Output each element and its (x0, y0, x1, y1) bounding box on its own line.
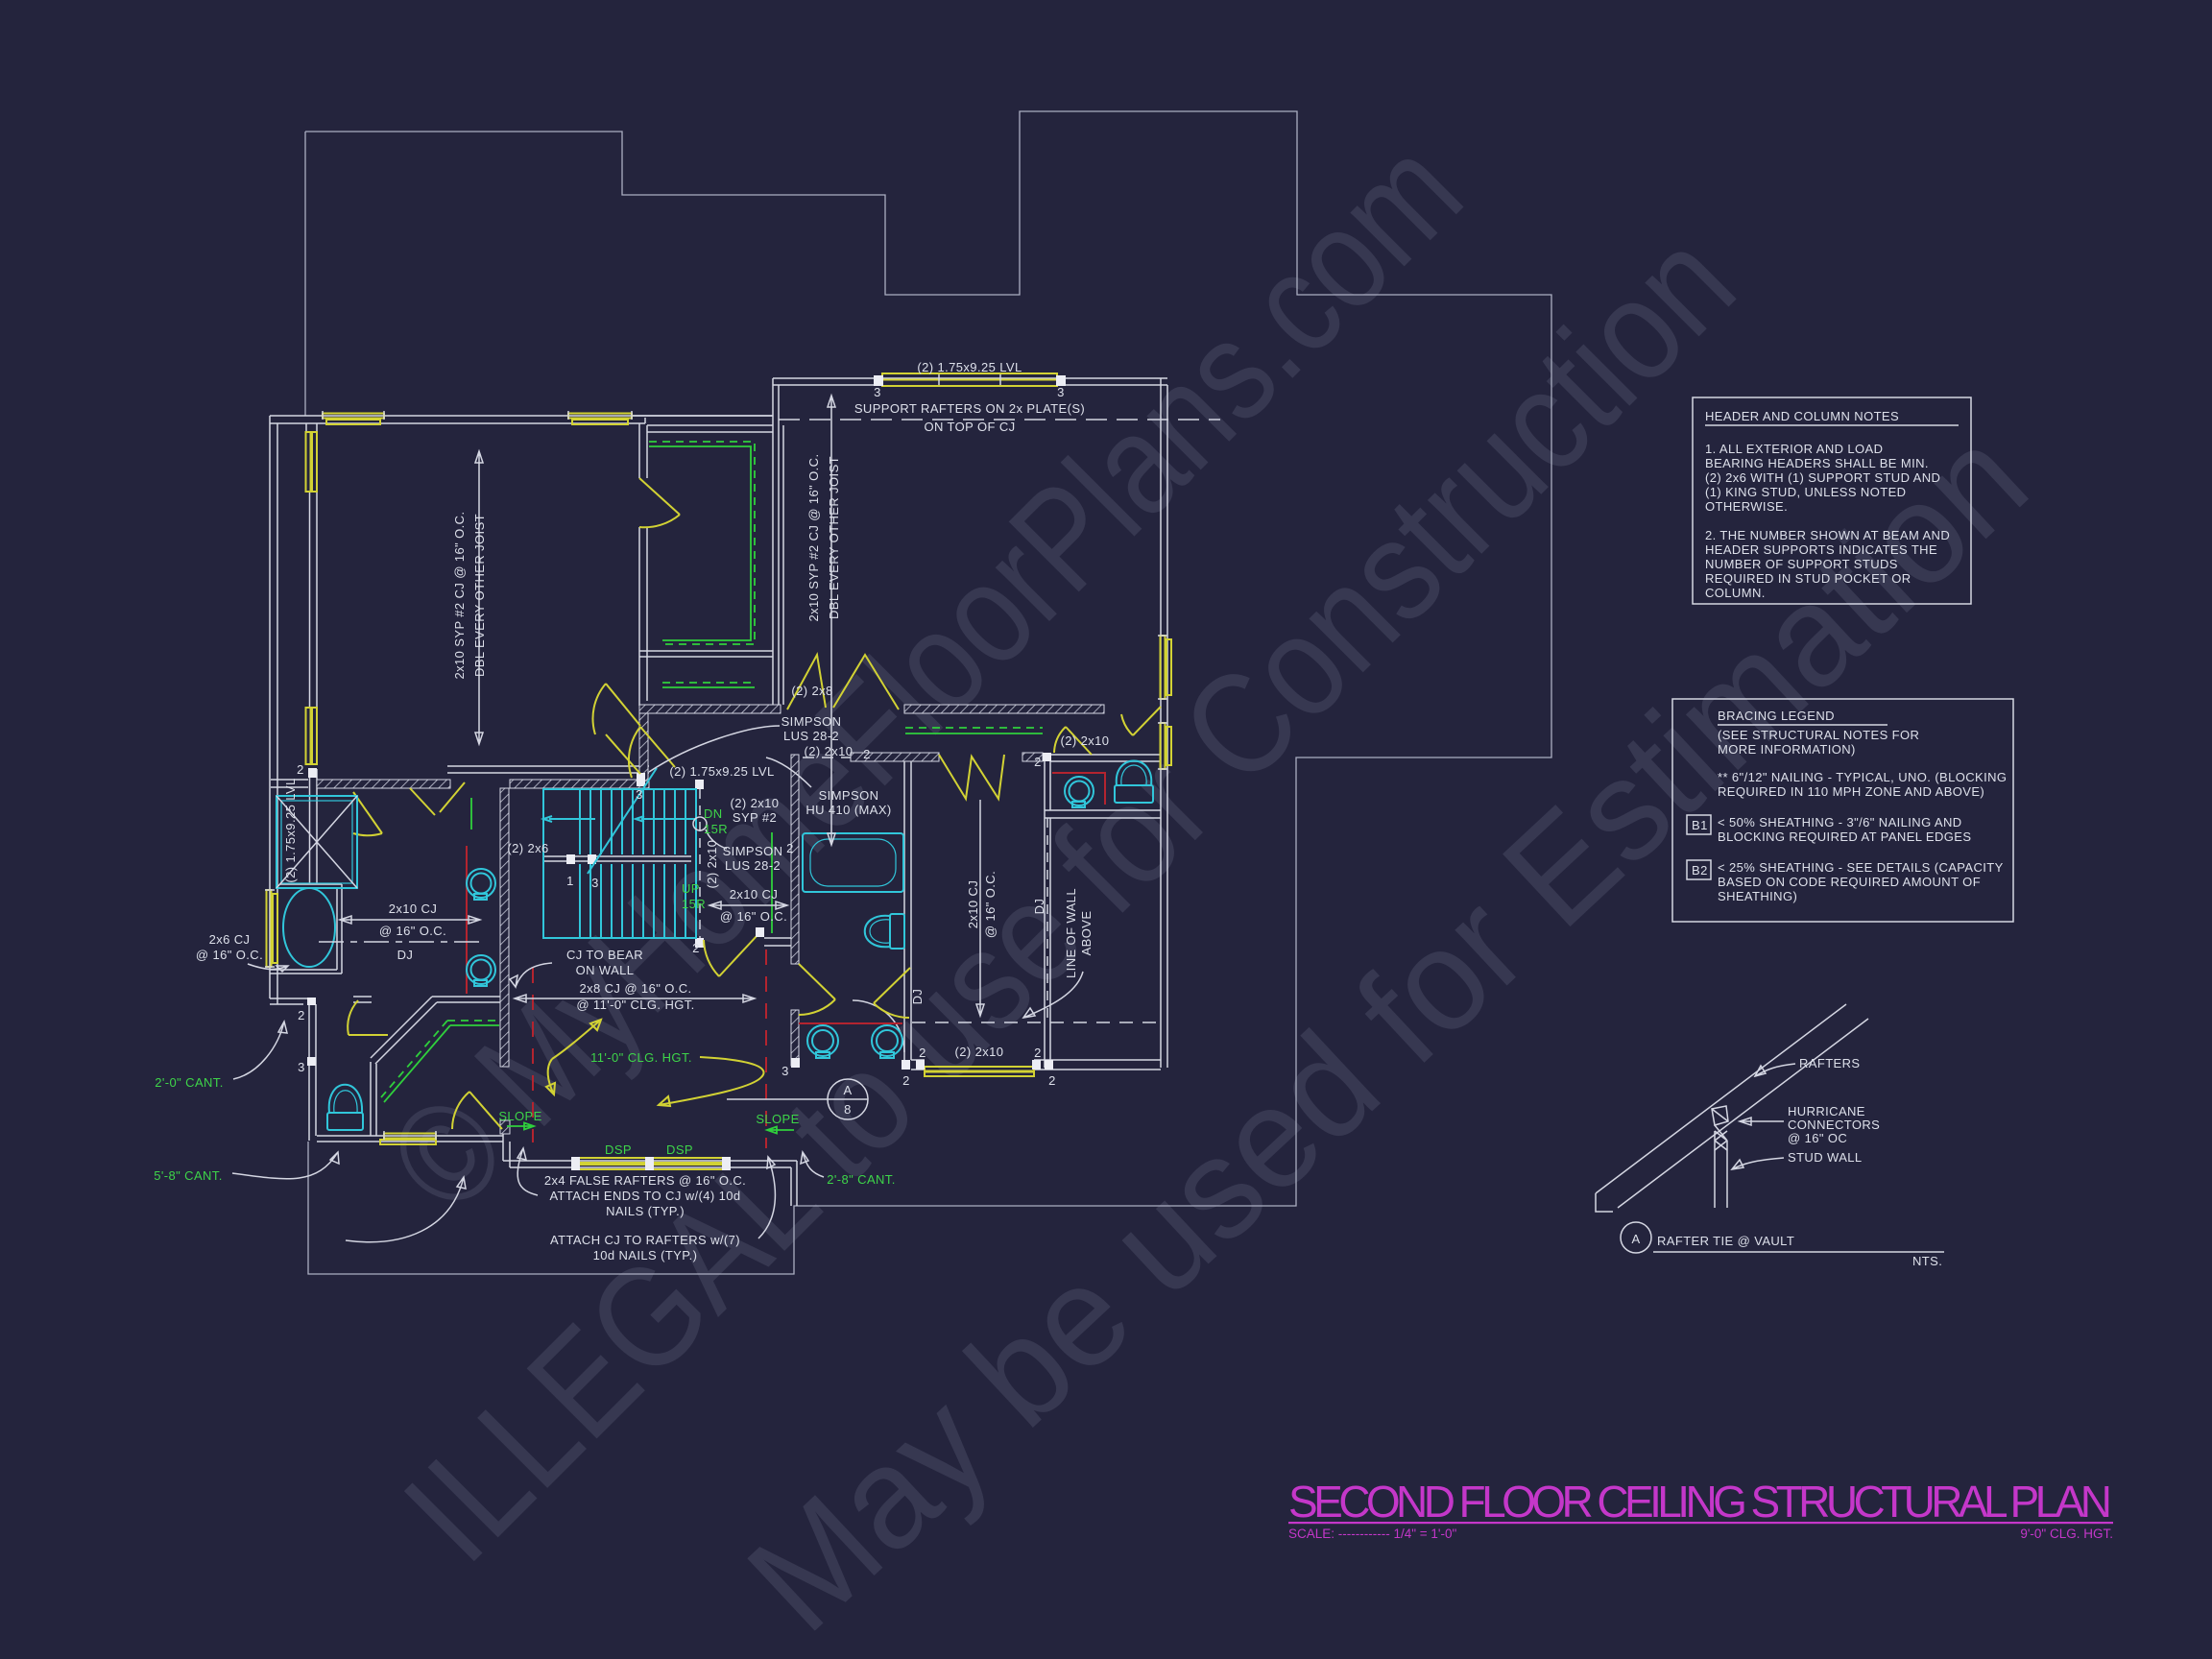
svg-text:(2) 2x6: (2) 2x6 (507, 841, 548, 855)
svg-text:MORE INFORMATION): MORE INFORMATION) (1718, 742, 1856, 757)
svg-text:11'-0" CLG. HGT.: 11'-0" CLG. HGT. (590, 1050, 692, 1065)
svg-text:STUD WALL: STUD WALL (1788, 1150, 1863, 1165)
svg-text:(2) 2x10: (2) 2x10 (731, 796, 780, 810)
svg-text:NTS.: NTS. (1912, 1254, 1942, 1268)
svg-text:DJ: DJ (397, 948, 414, 962)
svg-text:2x4 FALSE RAFTERS @ 16" O.C.: 2x4 FALSE RAFTERS @ 16" O.C. (544, 1173, 746, 1188)
svg-text:2: 2 (298, 1008, 305, 1022)
svg-text:2x6 CJ: 2x6 CJ (209, 932, 251, 947)
svg-text:** 6"/12" NAILING - TYPICAL, U: ** 6"/12" NAILING - TYPICAL, UNO. (BLOCK… (1718, 770, 2007, 784)
svg-text:ATTACH ENDS TO CJ w/(4) 10d: ATTACH ENDS TO CJ w/(4) 10d (549, 1189, 740, 1203)
svg-text:3: 3 (636, 787, 643, 802)
svg-text:ATTACH CJ TO RAFTERS w/(7): ATTACH CJ TO RAFTERS w/(7) (550, 1233, 740, 1247)
svg-text:SIMPSON: SIMPSON (819, 788, 879, 803)
svg-text:NAILS (TYP.): NAILS (TYP.) (606, 1204, 685, 1218)
svg-text:UP: UP (682, 881, 700, 896)
svg-text:A: A (1631, 1232, 1640, 1246)
svg-text:OTHERWISE.: OTHERWISE. (1705, 499, 1788, 514)
svg-text:DSP: DSP (605, 1142, 632, 1157)
svg-text:BASED ON CODE REQUIRED AMOUNT: BASED ON CODE REQUIRED AMOUNT OF (1718, 875, 1981, 889)
svg-text:SIMPSON: SIMPSON (781, 714, 842, 729)
svg-text:SHEATHING): SHEATHING) (1718, 889, 1797, 903)
svg-text:@ 16" OC: @ 16" OC (1788, 1131, 1847, 1145)
svg-text:HURRICANE: HURRICANE (1788, 1104, 1865, 1118)
svg-text:SLOPE: SLOPE (498, 1109, 541, 1123)
svg-text:@ 16" O.C.: @ 16" O.C. (983, 871, 998, 938)
svg-text:SYP #2: SYP #2 (733, 810, 777, 825)
svg-text:2: 2 (863, 747, 871, 761)
svg-text:SIMPSON: SIMPSON (723, 844, 783, 858)
svg-text:REQUIRED IN STUD POCKET OR: REQUIRED IN STUD POCKET OR (1705, 571, 1911, 586)
svg-text:DBL EVERY OTHER JOIST: DBL EVERY OTHER JOIST (472, 514, 487, 677)
svg-text:< 25% SHEATHING - SEE DETAILS: < 25% SHEATHING - SEE DETAILS (CAPACITY (1718, 860, 2004, 875)
svg-text:SLOPE: SLOPE (756, 1112, 799, 1126)
svg-text:BLOCKING REQUIRED AT PANEL EDG: BLOCKING REQUIRED AT PANEL EDGES (1718, 829, 1971, 844)
svg-text:(2) 2x6 WITH (1) SUPPORT STUD: (2) 2x6 WITH (1) SUPPORT STUD AND (1705, 470, 1940, 485)
svg-text:(2) 2x10: (2) 2x10 (705, 840, 719, 889)
svg-text:HU 410 (MAX): HU 410 (MAX) (805, 803, 891, 817)
svg-text:3: 3 (1057, 385, 1065, 399)
svg-text:RAFTER TIE @ VAULT: RAFTER TIE @ VAULT (1657, 1234, 1794, 1248)
svg-text:(2) 2x8: (2) 2x8 (791, 684, 832, 698)
svg-text:ON WALL: ON WALL (576, 963, 635, 977)
svg-text:2: 2 (902, 1073, 910, 1088)
svg-text:ABOVE: ABOVE (1079, 911, 1094, 956)
svg-text:2x8 CJ @ 16" O.C.: 2x8 CJ @ 16" O.C. (579, 981, 691, 996)
svg-text:3: 3 (298, 1060, 305, 1074)
svg-text:NUMBER OF SUPPORT STUDS: NUMBER OF SUPPORT STUDS (1705, 557, 1898, 571)
svg-text:2'-0" CANT.: 2'-0" CANT. (155, 1075, 223, 1090)
svg-text:3: 3 (874, 385, 881, 399)
svg-text:A: A (843, 1083, 852, 1097)
svg-text:(2) 1.75x9.25 LVL: (2) 1.75x9.25 LVL (917, 360, 1022, 374)
svg-text:2: 2 (1034, 1046, 1042, 1060)
svg-text:HEADER AND COLUMN NOTES: HEADER AND COLUMN NOTES (1705, 409, 1899, 423)
svg-text:2: 2 (1034, 755, 1042, 769)
svg-text:(2) 2x10: (2) 2x10 (1061, 733, 1110, 748)
svg-text:LUS 28-2: LUS 28-2 (783, 729, 839, 743)
svg-text:DSP: DSP (666, 1142, 693, 1157)
svg-text:2x10 SYP #2 CJ @ 16" O.C.: 2x10 SYP #2 CJ @ 16" O.C. (452, 512, 467, 680)
svg-text:(2) 2x10: (2) 2x10 (955, 1045, 1004, 1059)
svg-text:2: 2 (786, 841, 794, 855)
svg-text:SCALE: ------------ 1/4" = 1'-: SCALE: ------------ 1/4" = 1'-0" (1288, 1527, 1457, 1541)
svg-text:CONNECTORS: CONNECTORS (1788, 1118, 1880, 1132)
svg-text:5'-8" CANT.: 5'-8" CANT. (154, 1168, 222, 1183)
svg-text:2: 2 (692, 941, 700, 955)
svg-text:B2: B2 (1692, 863, 1708, 878)
svg-text:8: 8 (844, 1102, 852, 1117)
svg-text:DJ: DJ (1032, 899, 1046, 915)
svg-text:2. THE NUMBER SHOWN AT BEAM AN: 2. THE NUMBER SHOWN AT BEAM AND (1705, 528, 1950, 542)
svg-text:3: 3 (591, 876, 599, 890)
svg-text:DBL EVERY OTHER JOIST: DBL EVERY OTHER JOIST (827, 456, 841, 619)
svg-text:@ 11'-0" CLG. HGT.: @ 11'-0" CLG. HGT. (576, 998, 694, 1012)
svg-text:2: 2 (919, 1046, 926, 1060)
svg-text:LUS 28-2: LUS 28-2 (725, 858, 781, 873)
svg-text:@ 16" O.C.: @ 16" O.C. (196, 948, 263, 962)
svg-text:(2) 1.75x9.25 LVL: (2) 1.75x9.25 LVL (283, 778, 298, 882)
svg-text:10d NAILS (TYP.): 10d NAILS (TYP.) (593, 1248, 698, 1262)
svg-text:COLUMN.: COLUMN. (1705, 586, 1766, 600)
svg-text:(2) 1.75x9.25 LVL: (2) 1.75x9.25 LVL (669, 764, 774, 779)
svg-text:B1: B1 (1692, 818, 1708, 832)
svg-text:RAFTERS: RAFTERS (1799, 1056, 1860, 1070)
svg-text:BEARING HEADERS SHALL BE MIN.: BEARING HEADERS SHALL BE MIN. (1705, 456, 1929, 470)
svg-text:@ 16" O.C.: @ 16" O.C. (720, 909, 787, 924)
svg-text:< 50% SHEATHING - 3"/6" NAILIN: < 50% SHEATHING - 3"/6" NAILING AND (1718, 815, 1962, 829)
svg-text:3: 3 (781, 1064, 789, 1078)
svg-text:15R: 15R (682, 897, 706, 911)
svg-text:@ 16" O.C.: @ 16" O.C. (379, 924, 446, 938)
svg-text:9'-0" CLG. HGT.: 9'-0" CLG. HGT. (2020, 1527, 2113, 1541)
svg-text:HEADER SUPPORTS INDICATES THE: HEADER SUPPORTS INDICATES THE (1705, 542, 1937, 557)
svg-text:DN: DN (704, 806, 723, 821)
svg-text:REQUIRED IN 110 MPH ZONE AND A: REQUIRED IN 110 MPH ZONE AND ABOVE) (1718, 784, 1984, 799)
svg-text:SECOND FLOOR CEILING STRUCTURA: SECOND FLOOR CEILING STRUCTURAL PLAN (1288, 1477, 2113, 1527)
svg-text:(2) 2x10: (2) 2x10 (805, 744, 854, 758)
svg-text:2: 2 (1048, 1073, 1056, 1088)
svg-text:SUPPORT RAFTERS ON 2x PLATE(S): SUPPORT RAFTERS ON 2x PLATE(S) (854, 401, 1085, 416)
svg-text:DJ: DJ (910, 989, 925, 1005)
svg-text:CJ TO BEAR: CJ TO BEAR (566, 948, 643, 962)
svg-text:BRACING LEGEND: BRACING LEGEND (1718, 709, 1835, 723)
svg-text:(1) KING STUD, UNLESS NOTED: (1) KING STUD, UNLESS NOTED (1705, 485, 1906, 499)
svg-text:1: 1 (566, 874, 574, 888)
svg-text:(SEE STRUCTURAL NOTES FOR: (SEE STRUCTURAL NOTES FOR (1718, 728, 1919, 742)
svg-text:2x10 CJ: 2x10 CJ (389, 902, 438, 916)
svg-text:ON TOP OF CJ: ON TOP OF CJ (924, 420, 1015, 434)
svg-text:2x10 CJ: 2x10 CJ (730, 887, 779, 902)
svg-text:2x10 CJ: 2x10 CJ (966, 880, 980, 929)
svg-text:2x10 SYP #2 CJ @ 16" O.C.: 2x10 SYP #2 CJ @ 16" O.C. (806, 454, 821, 622)
svg-text:LINE OF WALL: LINE OF WALL (1064, 888, 1078, 978)
svg-text:1. ALL EXTERIOR AND LOAD: 1. ALL EXTERIOR AND LOAD (1705, 442, 1883, 456)
svg-text:2'-8" CANT.: 2'-8" CANT. (827, 1172, 895, 1187)
svg-text:15R: 15R (704, 822, 728, 836)
svg-text:2: 2 (297, 762, 304, 777)
